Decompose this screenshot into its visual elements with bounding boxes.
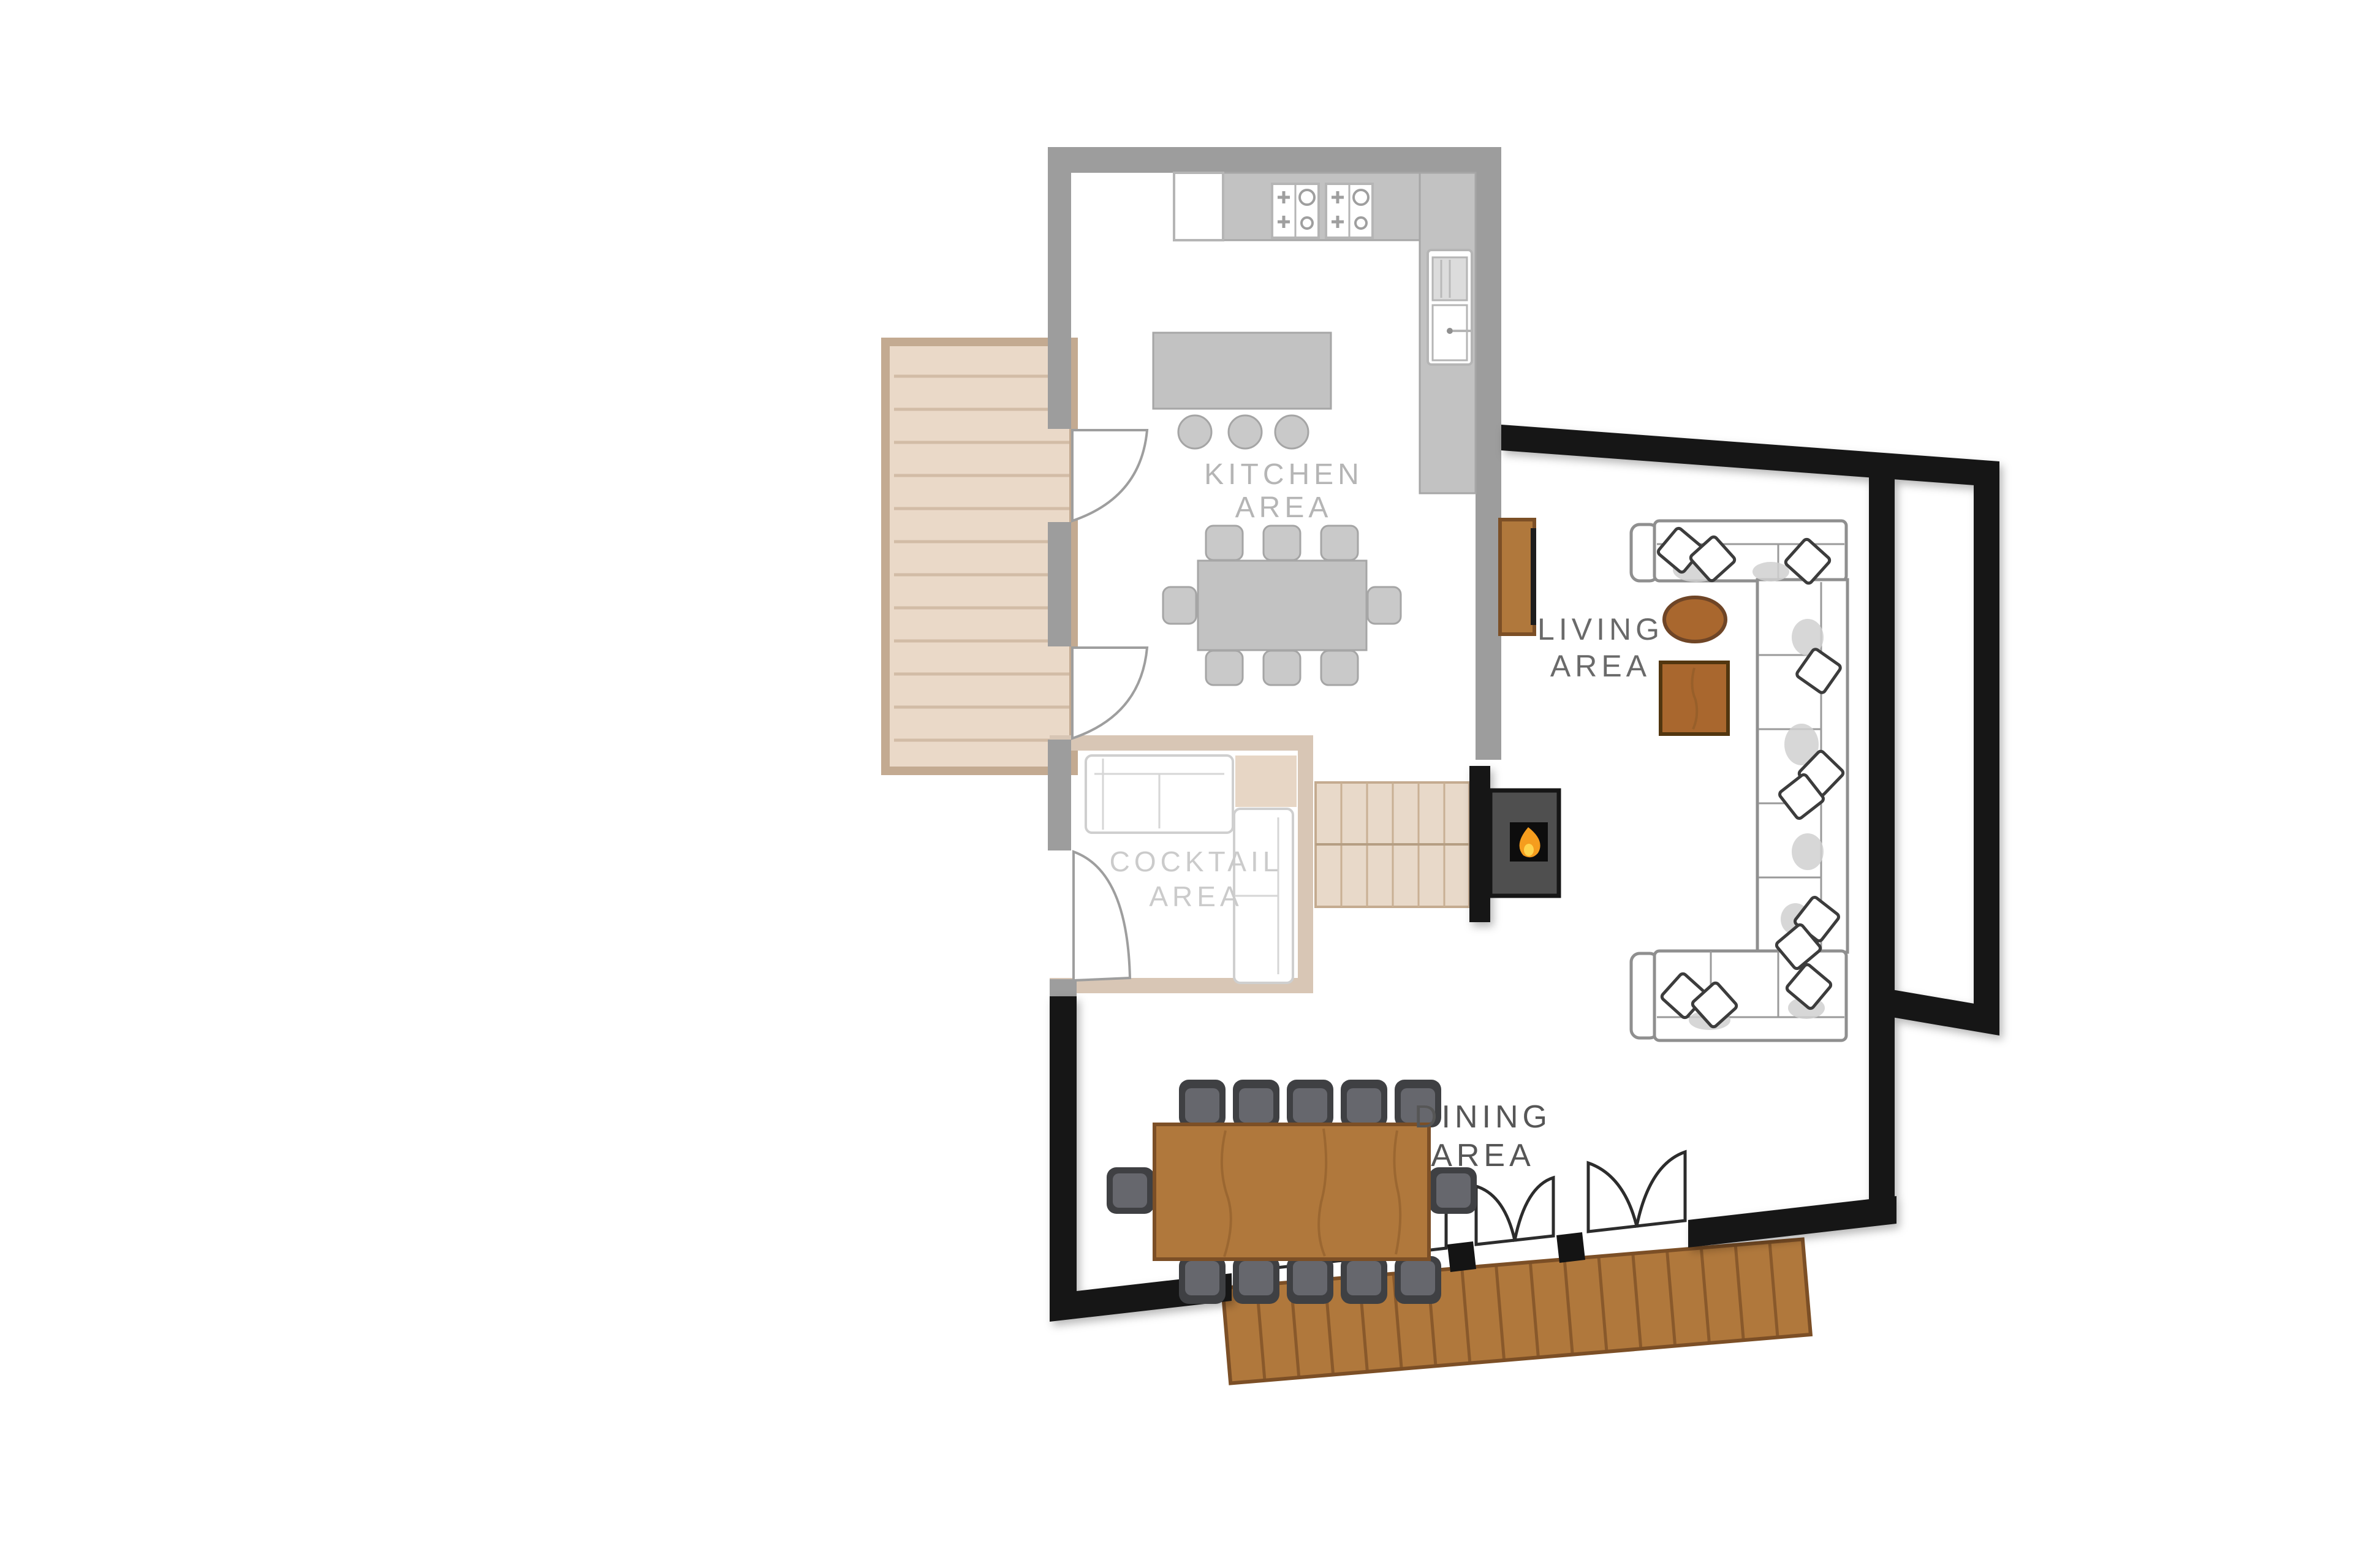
sofa: [1631, 521, 1847, 1040]
hob-icon: [1326, 184, 1373, 238]
kitchen-table-set: [1163, 526, 1401, 685]
kitchen-right-wall: [1476, 147, 1501, 760]
coffee-table: [1661, 662, 1728, 734]
door-pier: [1447, 1241, 1476, 1272]
coffee-table-round: [1664, 597, 1726, 642]
balcony-right-wall: [1974, 461, 1999, 1012]
dining-chair: [1287, 1080, 1333, 1127]
patio-door: [1637, 1152, 1685, 1226]
living-area-label: LIVINGAREA: [1537, 612, 1664, 683]
cocktail-rug: [1235, 756, 1297, 807]
deck-left: [885, 342, 1074, 771]
kitchen-left-wall: [1048, 147, 1071, 429]
bar-stool: [1275, 415, 1308, 449]
patio-door: [1588, 1163, 1637, 1232]
kitchen-counter: [1223, 173, 1420, 240]
kitchen-island: [1153, 333, 1331, 409]
dining-chair: [1179, 1256, 1226, 1304]
patio-door: [1476, 1186, 1515, 1244]
kitchen-door: [1072, 648, 1147, 738]
dining-chair: [1179, 1080, 1226, 1127]
door-pier: [1556, 1232, 1585, 1263]
tv-cabinet: [1500, 520, 1536, 634]
hob-icon: [1272, 184, 1319, 238]
bar-stool: [1229, 415, 1262, 449]
patio-door: [1515, 1178, 1553, 1240]
dining-chair: [1107, 1167, 1154, 1214]
fireplace-wall: [1469, 766, 1490, 922]
kitchen-cabinet: [1174, 173, 1223, 240]
living-area-room: LIVINGAREA: [1500, 520, 1847, 1040]
bar-stool: [1178, 415, 1211, 449]
dining-area-label: DININGAREA: [1414, 1099, 1552, 1173]
kitchen-door: [1072, 430, 1147, 521]
living-right-wall: [1869, 472, 1895, 1202]
dining-chair: [1233, 1256, 1279, 1304]
wall-cap: [1050, 979, 1077, 996]
dining-chair: [1341, 1256, 1387, 1304]
dining-chair: [1395, 1256, 1441, 1304]
dining-chair: [1287, 1256, 1333, 1304]
cocktail-area-room: COCKTAILAREA: [1050, 735, 1313, 993]
kitchen-table: [1198, 561, 1366, 650]
dining-chair: [1233, 1080, 1279, 1127]
dining-chair: [1429, 1167, 1477, 1214]
floor-plan-canvas: COCKTAILAREA: [0, 0, 2353, 1568]
dining-table: [1154, 1124, 1429, 1259]
kitchen-top-wall: [1048, 147, 1501, 173]
floor-plan: COCKTAILAREA: [0, 0, 2353, 1568]
fridge-icon: [1428, 250, 1472, 365]
fireplace: [1490, 790, 1559, 896]
dining-chair: [1341, 1080, 1387, 1127]
staircase: [1316, 782, 1469, 907]
living-top-wall: [1501, 425, 1999, 487]
kitchen-area-label: KITCHENAREA: [1204, 458, 1363, 524]
tv-icon: [1531, 528, 1536, 625]
